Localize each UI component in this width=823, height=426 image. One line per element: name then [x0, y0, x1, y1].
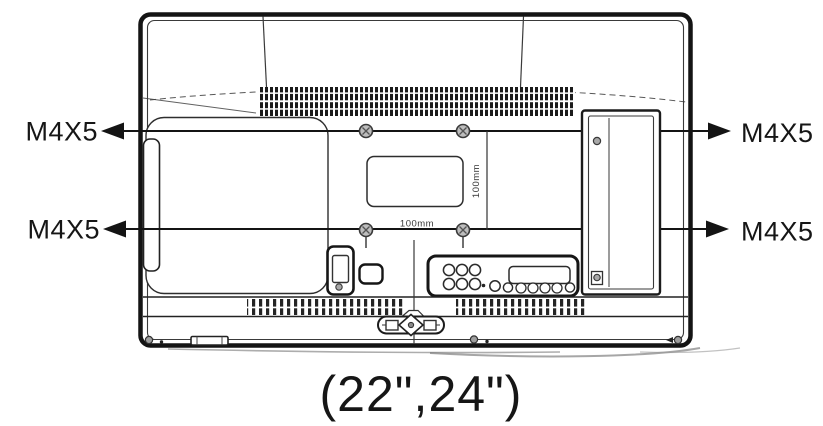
ir-dot [482, 284, 486, 288]
vesa-screw-bottom-right [457, 224, 470, 237]
ground-shadow [168, 348, 740, 356]
dimension-label-width: 100mm [400, 219, 434, 230]
small-port-block [360, 265, 383, 284]
bottom-slot [191, 337, 228, 346]
left-edge-strip [144, 139, 160, 271]
arrow-left-icon [101, 123, 124, 140]
screw-label-top-left: M4X5 [25, 117, 98, 147]
screw-label-bottom-left: M4X5 [27, 215, 100, 245]
tv-rear-diagram: M4X5 M4X5 M4X5 M4X5 100mm 100mm (22",24"… [0, 0, 823, 426]
size-caption: (22",24") [320, 366, 523, 422]
arrow-right-icon [708, 123, 731, 140]
vesa-screw-top-right [457, 125, 470, 138]
figure-canvas: M4X5 M4X5 M4X5 M4X5 100mm 100mm (22",24"… [0, 0, 823, 426]
vesa-screw-bottom-left [360, 224, 373, 237]
arrow-left-icon [103, 221, 126, 238]
panel-screw-bottom [594, 274, 600, 280]
right-side-panel [582, 111, 660, 295]
power-switch-block [328, 247, 354, 295]
left-back-panel [146, 118, 328, 294]
connector-panel [428, 256, 578, 296]
panel-screw-top [593, 137, 600, 144]
screw-label-bottom-right: M4X5 [741, 217, 814, 247]
vesa-screw-top-left [360, 125, 373, 138]
vesa-label-plate [367, 157, 463, 207]
dimension-label-height: 100mm [471, 164, 482, 198]
speaker-grille [256, 87, 577, 116]
screw-label-top-right: M4X5 [741, 118, 814, 148]
audio-jack [490, 281, 500, 291]
arrow-right-icon [706, 221, 729, 238]
